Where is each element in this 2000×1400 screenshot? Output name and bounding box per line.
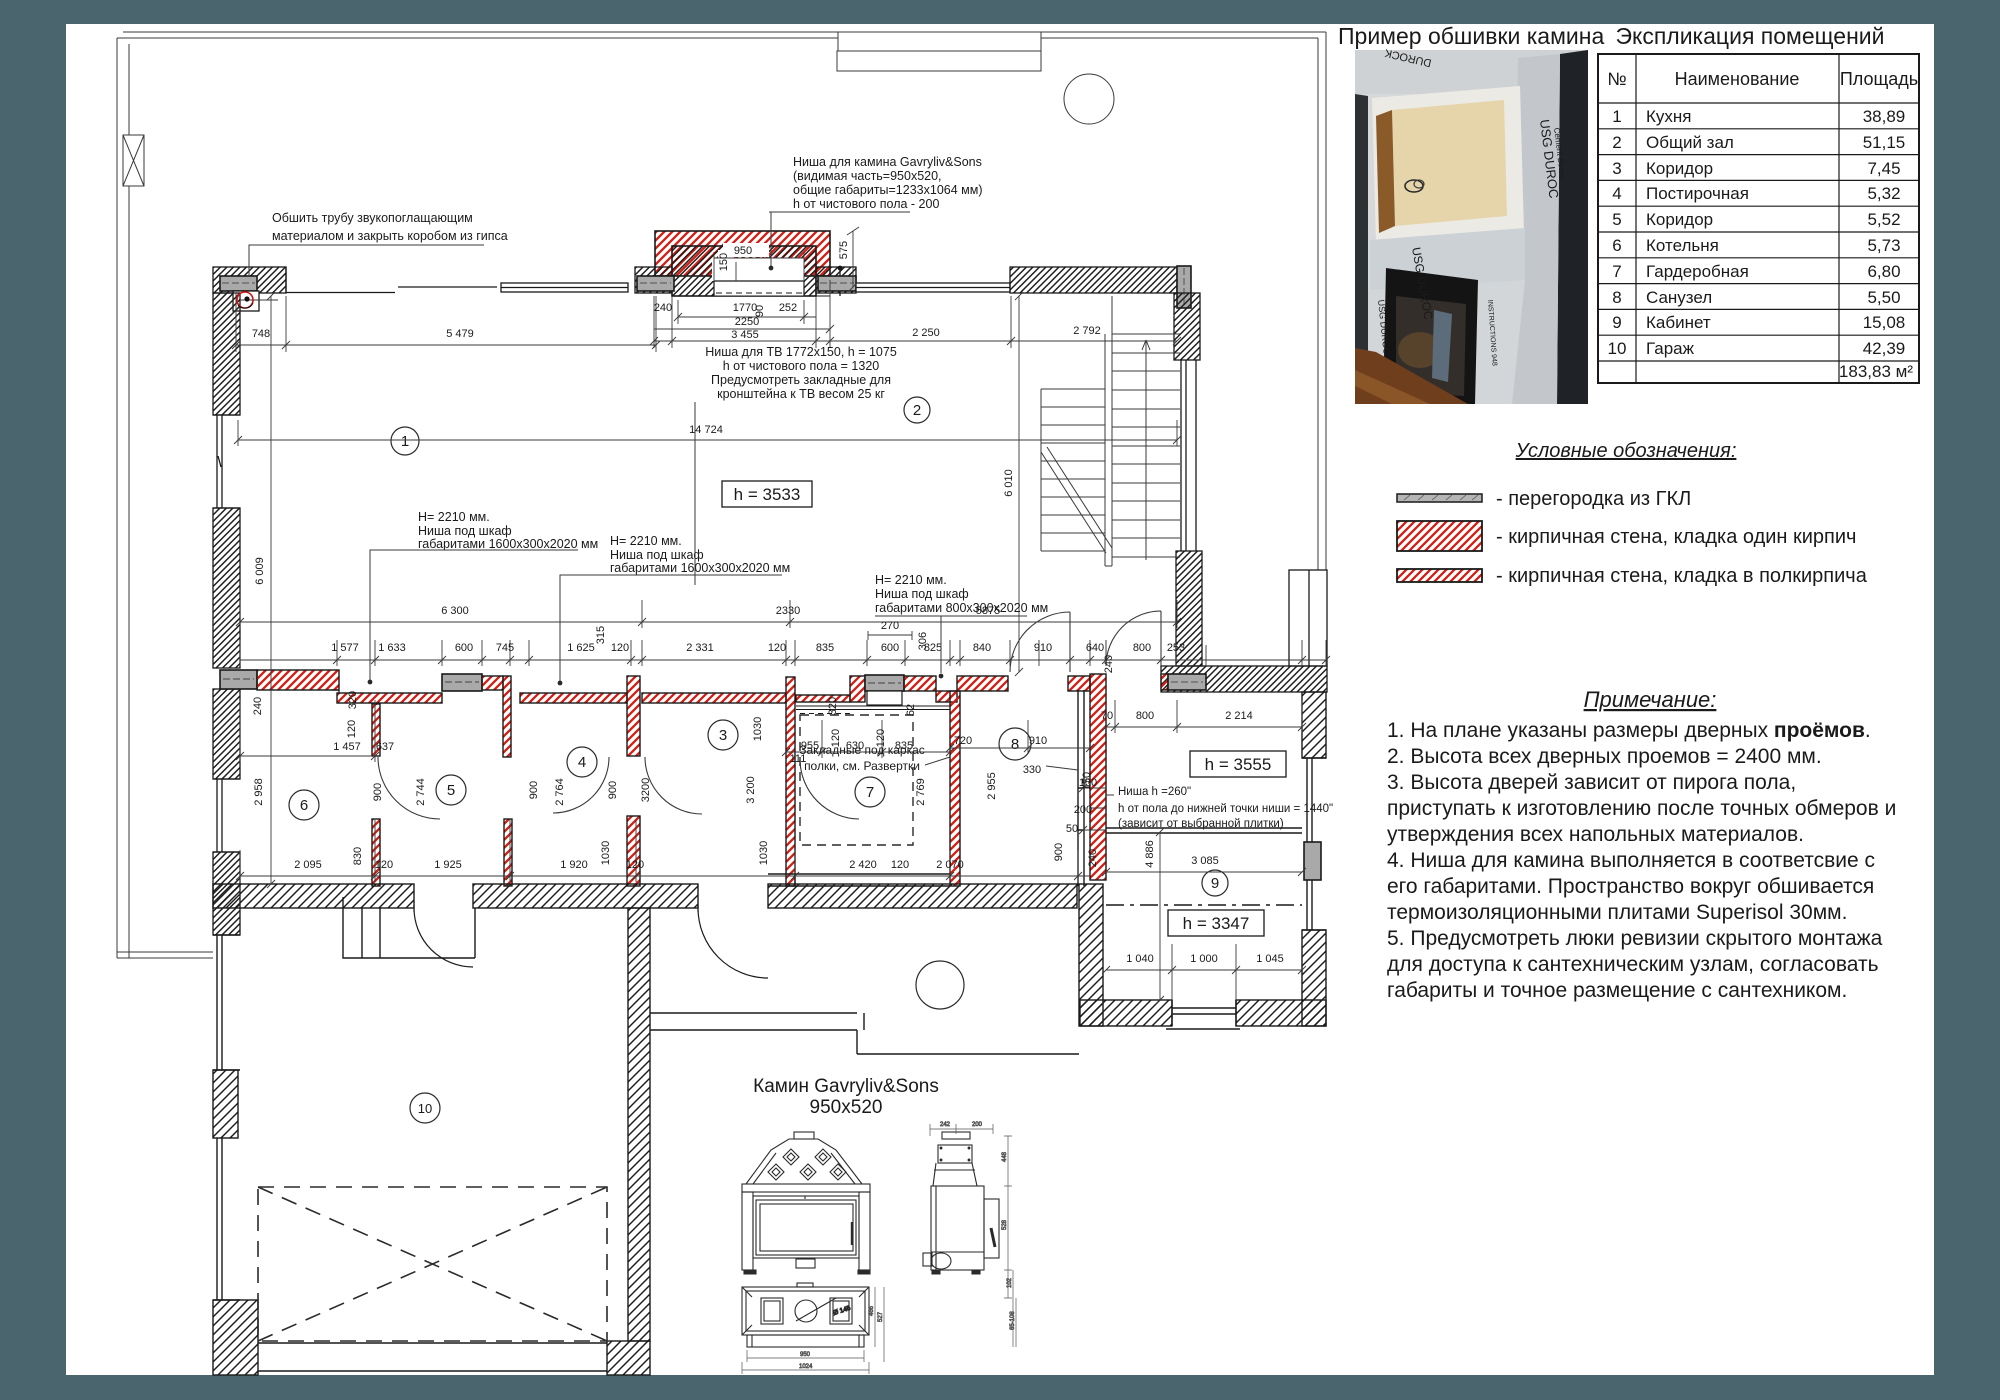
svg-text:1 040: 1 040 — [1126, 953, 1154, 965]
svg-text:его габаритами. Пространство в: его габаритами. Пространство вокруг обши… — [1387, 875, 1874, 898]
svg-text:6 010: 6 010 — [1003, 469, 1015, 497]
svg-text:Пример обшивки камина: Пример обшивки камина — [1338, 23, 1604, 49]
svg-text:4. Ниша для камина выполняется: 4. Ниша для камина выполняется в соответ… — [1387, 849, 1875, 872]
svg-text:2: 2 — [1612, 133, 1621, 152]
svg-text:9: 9 — [1211, 875, 1219, 892]
svg-text:полки, см. Развертки: полки, см. Развертки — [804, 759, 920, 773]
svg-text:6 009: 6 009 — [254, 557, 266, 585]
svg-text:Площадь: Площадь — [1840, 69, 1918, 89]
svg-text:7: 7 — [866, 784, 874, 801]
svg-text:Кухня: Кухня — [1646, 107, 1692, 126]
svg-text:600: 600 — [881, 642, 899, 654]
svg-text:(видимая часть=950х520,: (видимая часть=950х520, — [793, 169, 942, 183]
svg-text:15,08: 15,08 — [1863, 313, 1906, 332]
svg-text:Обшить трубу звукопоглащающим: Обшить трубу звукопоглащающим — [272, 211, 473, 225]
svg-text:527: 527 — [878, 1311, 884, 1322]
svg-text:1: 1 — [1612, 107, 1621, 126]
svg-text:общие габариты=1233х1064 мм): общие габариты=1233х1064 мм) — [793, 183, 983, 197]
svg-text:Закладные под каркас: Закладные под каркас — [799, 743, 925, 757]
svg-text:№: № — [1607, 69, 1626, 89]
svg-text:38,89: 38,89 — [1863, 107, 1906, 126]
svg-text:3200: 3200 — [640, 778, 652, 802]
svg-text:102: 102 — [1007, 1277, 1013, 1288]
svg-text:320: 320 — [827, 697, 839, 715]
svg-text:h = 3555: h = 3555 — [1205, 755, 1272, 774]
svg-text:9: 9 — [1612, 313, 1621, 332]
svg-text:90: 90 — [754, 305, 766, 317]
svg-text:Ниша для ТВ 1772х150, h = 1075: Ниша для ТВ 1772х150, h = 1075 — [705, 345, 897, 359]
svg-text:1 045: 1 045 — [1256, 953, 1284, 965]
svg-text:10: 10 — [1608, 339, 1627, 358]
svg-text:600: 600 — [455, 642, 473, 654]
svg-text:Камин Gavryliv&Sons: Камин Gavryliv&Sons — [753, 1076, 939, 1097]
svg-text:900: 900 — [1053, 843, 1065, 861]
svg-text:Котельня: Котельня — [1646, 236, 1719, 255]
svg-text:2 792: 2 792 — [1073, 325, 1101, 337]
svg-text:5. Предусмотреть люки ревизии: 5. Предусмотреть люки ревизии скрытого м… — [1387, 927, 1883, 950]
svg-text:6: 6 — [1612, 236, 1621, 255]
svg-text:(зависит от выбранной плитки): (зависит от выбранной плитки) — [1118, 818, 1284, 830]
svg-text:2 095: 2 095 — [294, 859, 322, 871]
svg-text:Гардеробная: Гардеробная — [1646, 262, 1749, 281]
svg-text:h от чистового пола = 1320: h от чистового пола = 1320 — [723, 359, 880, 373]
svg-text:Условные обозначения:: Условные обозначения: — [1515, 440, 1737, 462]
svg-text:Ниша под шкаф: Ниша под шкаф — [875, 587, 969, 601]
svg-text:5,32: 5,32 — [1867, 184, 1900, 203]
svg-text:3 200: 3 200 — [745, 776, 757, 804]
svg-text:H= 2210 мм.: H= 2210 мм. — [875, 573, 947, 587]
svg-text:материалом и закрыть коробом и: материалом и закрыть коробом из гипса — [272, 229, 508, 243]
svg-text:183,83 м²: 183,83 м² — [1839, 362, 1913, 381]
svg-text:8: 8 — [1612, 288, 1621, 307]
svg-text:1. На плане указаны размеры дв: 1. На плане указаны размеры дверных проё… — [1387, 719, 1871, 742]
svg-text:150: 150 — [718, 253, 730, 271]
svg-text:5: 5 — [447, 782, 455, 799]
svg-text:320: 320 — [347, 691, 359, 709]
svg-text:10: 10 — [418, 1101, 432, 1116]
svg-text:835: 835 — [816, 642, 834, 654]
svg-text:5: 5 — [1612, 210, 1621, 229]
svg-text:800: 800 — [1136, 710, 1154, 722]
svg-text:2. Высота всех дверных проемов: 2. Высота всех дверных проемов = 2400 мм… — [1387, 745, 1822, 768]
svg-text:50: 50 — [1066, 823, 1078, 835]
svg-text:Ниша для камина Gavryliv&Sons: Ниша для камина Gavryliv&Sons — [793, 155, 982, 169]
svg-text:330: 330 — [1023, 764, 1041, 776]
svg-text:120: 120 — [768, 642, 786, 654]
svg-text:120: 120 — [346, 720, 358, 738]
svg-text:3. Высота дверей зависит от пи: 3. Высота дверей зависит от пирога пола, — [1387, 771, 1796, 794]
svg-text:1024: 1024 — [799, 1364, 813, 1370]
svg-text:1 920: 1 920 — [560, 859, 588, 871]
svg-text:2 958: 2 958 — [253, 778, 265, 806]
svg-text:748: 748 — [252, 328, 270, 340]
svg-text:1030: 1030 — [758, 841, 770, 865]
svg-text:1030: 1030 — [600, 841, 612, 865]
svg-text:200: 200 — [1074, 804, 1092, 816]
svg-text:6: 6 — [300, 797, 308, 814]
svg-text:H= 2210 мм.: H= 2210 мм. — [418, 510, 490, 524]
svg-text:120: 120 — [626, 859, 644, 871]
svg-text:315: 315 — [595, 626, 607, 644]
svg-text:900: 900 — [607, 781, 619, 799]
svg-text:2 214: 2 214 — [1225, 710, 1253, 722]
svg-text:7,45: 7,45 — [1867, 159, 1900, 178]
svg-text:62: 62 — [905, 704, 917, 716]
svg-text:42,39: 42,39 — [1863, 339, 1906, 358]
svg-text:1: 1 — [401, 433, 409, 450]
svg-text:2 769: 2 769 — [915, 778, 927, 806]
svg-text:910: 910 — [1029, 735, 1047, 747]
svg-text:120: 120 — [891, 859, 909, 871]
svg-text:950х520: 950х520 — [810, 1097, 883, 1118]
svg-text:5,73: 5,73 — [1867, 236, 1900, 255]
svg-text:2 331: 2 331 — [686, 642, 714, 654]
svg-text:Экспликация помещений: Экспликация помещений — [1615, 23, 1884, 49]
svg-text:- кирпичная стена, кладка в по: - кирпичная стена, кладка в полкирпича — [1496, 565, 1868, 587]
svg-text:термоизоляционными плитами Sup: термоизоляционными плитами Superisol 30м… — [1387, 901, 1847, 924]
svg-text:Наименование: Наименование — [1675, 69, 1800, 89]
svg-text:448: 448 — [1002, 1151, 1008, 1162]
svg-text:120: 120 — [375, 859, 393, 871]
svg-text:950: 950 — [734, 245, 752, 257]
svg-text:120: 120 — [611, 642, 629, 654]
svg-text:306: 306 — [917, 632, 929, 650]
svg-text:200: 200 — [972, 1122, 983, 1128]
svg-text:7: 7 — [1612, 262, 1621, 281]
svg-text:5,52: 5,52 — [1867, 210, 1900, 229]
svg-text:900: 900 — [372, 783, 384, 801]
svg-text:h = 3533: h = 3533 — [734, 485, 801, 504]
svg-text:1 000: 1 000 — [1190, 953, 1218, 965]
svg-text:720: 720 — [954, 735, 972, 747]
svg-text:528: 528 — [1002, 1219, 1008, 1230]
svg-text:1 925: 1 925 — [434, 859, 462, 871]
svg-text:14 724: 14 724 — [689, 424, 723, 436]
svg-text:4: 4 — [1612, 184, 1621, 203]
svg-text:h от чистового пола - 200: h от чистового пола - 200 — [793, 197, 939, 211]
svg-text:3: 3 — [1612, 159, 1621, 178]
svg-text:Санузел: Санузел — [1646, 288, 1712, 307]
svg-text:H= 2210 мм.: H= 2210 мм. — [610, 534, 682, 548]
svg-text:2 070: 2 070 — [936, 859, 964, 871]
svg-text:4: 4 — [578, 754, 586, 771]
svg-text:Коридор: Коридор — [1646, 159, 1713, 178]
svg-text:h = 3347: h = 3347 — [1183, 914, 1250, 933]
svg-text:2 955: 2 955 — [986, 772, 998, 800]
svg-text:Примечание:: Примечание: — [1584, 687, 1717, 712]
svg-text:640: 640 — [1086, 642, 1104, 654]
svg-text:270: 270 — [881, 620, 899, 632]
svg-text:1 457: 1 457 — [333, 741, 361, 753]
svg-text:2 420: 2 420 — [849, 859, 877, 871]
svg-text:4 886: 4 886 — [1144, 840, 1156, 868]
svg-text:3 085: 3 085 — [1191, 855, 1219, 867]
svg-text:65-108: 65-108 — [1010, 1311, 1016, 1330]
svg-text:2 744: 2 744 — [415, 778, 427, 806]
svg-text:70: 70 — [1101, 710, 1113, 722]
svg-text:900: 900 — [528, 781, 540, 799]
svg-text:6,80: 6,80 — [1867, 262, 1900, 281]
svg-text:для доступа к сантехническим у: для доступа к сантехническим узлам, согл… — [1387, 953, 1879, 976]
svg-text:2: 2 — [913, 402, 921, 419]
svg-text:2 764: 2 764 — [554, 778, 566, 806]
svg-text:466: 466 — [869, 1305, 875, 1316]
svg-text:- кирпичная стена, кладка один: - кирпичная стена, кладка один кирпич — [1496, 526, 1856, 548]
svg-text:габаритами 1600х300х2020 мм: габаритами 1600х300х2020 мм — [418, 537, 598, 551]
svg-text:150: 150 — [1081, 772, 1093, 790]
svg-text:утверждения всех напольных мат: утверждения всех напольных материалов. — [1387, 823, 1804, 846]
svg-text:5,50: 5,50 — [1867, 288, 1900, 307]
svg-text:h от пола до нижней точки ниши: h от пола до нижней точки ниши = 1440" — [1118, 803, 1333, 815]
svg-text:габаритами 800х300х2020 мм: габаритами 800х300х2020 мм — [875, 601, 1048, 615]
svg-text:575: 575 — [838, 241, 850, 259]
svg-text:5 479: 5 479 — [446, 328, 474, 340]
svg-text:Ниша под шкаф: Ниша под шкаф — [610, 548, 704, 562]
svg-text:242: 242 — [940, 1122, 951, 1128]
svg-text:Гараж: Гараж — [1646, 339, 1695, 358]
svg-text:кронштейна к ТВ весом 25 кг: кронштейна к ТВ весом 25 кг — [717, 387, 885, 401]
svg-text:800: 800 — [1133, 642, 1151, 654]
svg-text:240: 240 — [252, 697, 264, 715]
svg-text:2 250: 2 250 — [912, 327, 940, 339]
svg-text:240: 240 — [1087, 849, 1099, 867]
svg-text:габариты и точное размещение с: габариты и точное размещение с сантехник… — [1387, 979, 1847, 1002]
svg-text:240: 240 — [1103, 655, 1115, 673]
svg-text:1 625: 1 625 — [567, 642, 595, 654]
svg-text:- перегородка из ГКЛ: - перегородка из ГКЛ — [1496, 488, 1691, 510]
svg-text:2330: 2330 — [776, 605, 800, 617]
svg-text:840: 840 — [973, 642, 991, 654]
svg-text:Коридор: Коридор — [1646, 210, 1713, 229]
svg-text:3: 3 — [719, 727, 727, 744]
svg-text:Общий зал: Общий зал — [1646, 133, 1734, 152]
svg-text:3 455: 3 455 — [731, 329, 759, 341]
svg-text:51,15: 51,15 — [1863, 133, 1906, 152]
svg-text:приступать к изготовлению посл: приступать к изготовлению после точных о… — [1387, 797, 1896, 820]
svg-text:Постирочная: Постирочная — [1646, 184, 1749, 203]
svg-text:Кабинет: Кабинет — [1646, 313, 1711, 332]
svg-text:1 577: 1 577 — [331, 642, 359, 654]
svg-text:910: 910 — [1034, 642, 1052, 654]
svg-text:Ниша под шкаф: Ниша под шкаф — [418, 524, 512, 538]
svg-text:745: 745 — [496, 642, 514, 654]
svg-text:1030: 1030 — [752, 717, 764, 741]
svg-text:240: 240 — [654, 302, 672, 314]
svg-text:1 633: 1 633 — [378, 642, 406, 654]
svg-text:830: 830 — [352, 847, 364, 865]
svg-text:8: 8 — [1011, 736, 1019, 753]
svg-text:6 300: 6 300 — [441, 605, 469, 617]
svg-text:Предусмотреть закладные для: Предусмотреть закладные для — [711, 373, 891, 387]
svg-text:габаритами 1600х300х2020 мм: габаритами 1600х300х2020 мм — [610, 561, 790, 575]
svg-text:950: 950 — [800, 1352, 811, 1358]
svg-text:253: 253 — [1167, 642, 1185, 654]
svg-text:637: 637 — [376, 741, 394, 753]
svg-text:252: 252 — [779, 302, 797, 314]
svg-text:Ниша h =260": Ниша h =260" — [1118, 786, 1191, 798]
